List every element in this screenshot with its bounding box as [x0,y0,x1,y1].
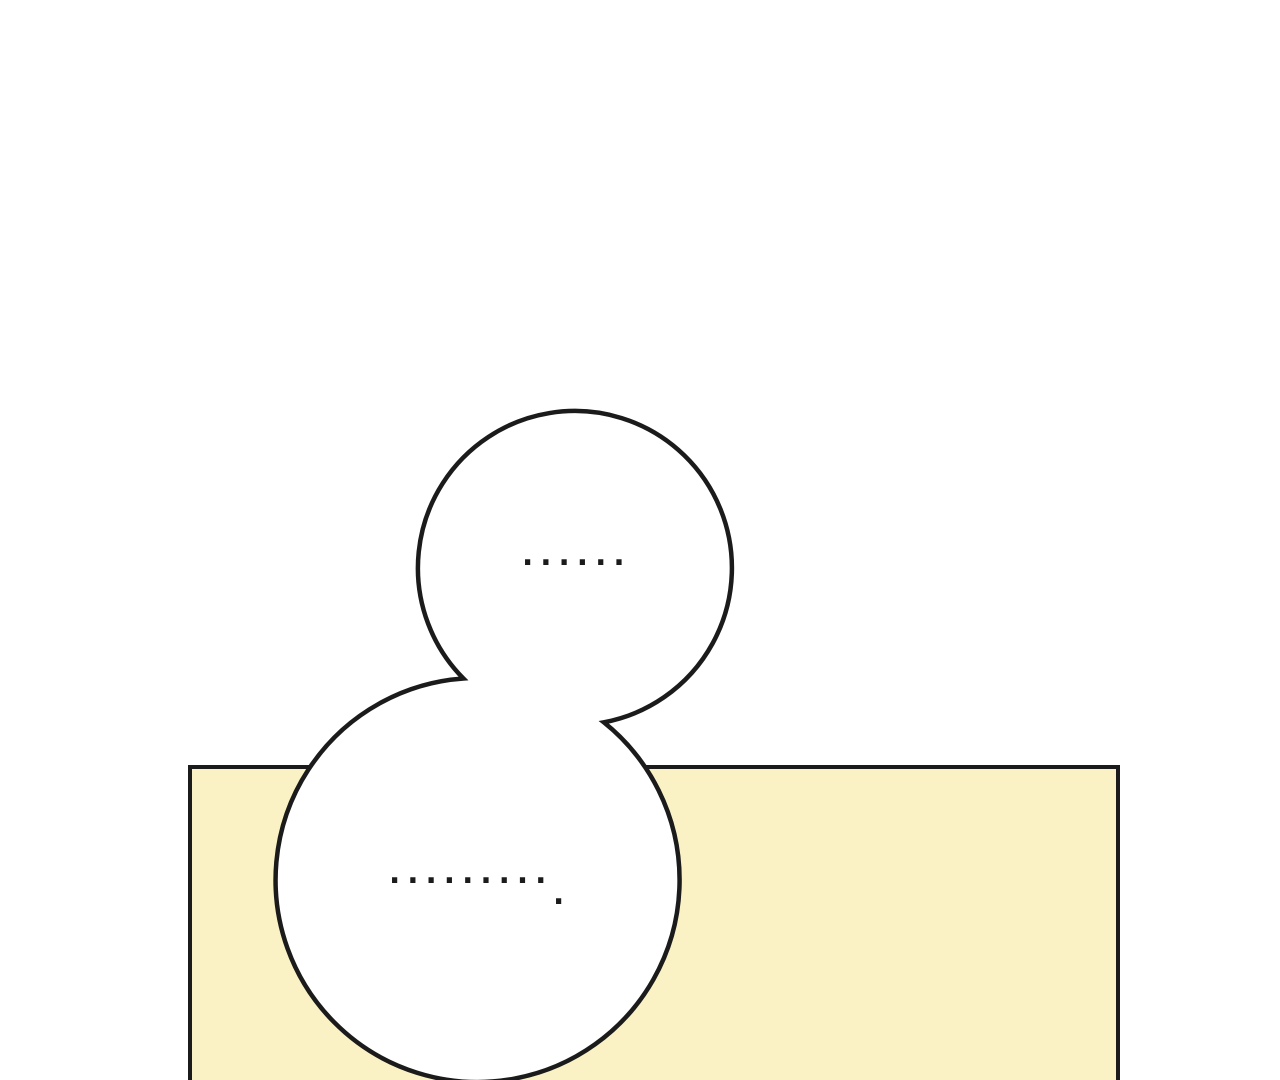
speech-text-bottom-period: . [549,873,567,913]
speech-text-top-ellipsis: ...... [518,534,628,574]
speech-bubble-group [0,0,1280,1080]
comic-page: ...... ......... . [0,0,1280,1080]
speech-bubble-outline [276,411,732,1080]
speech-text-bottom-ellipsis: ......... [385,852,549,892]
